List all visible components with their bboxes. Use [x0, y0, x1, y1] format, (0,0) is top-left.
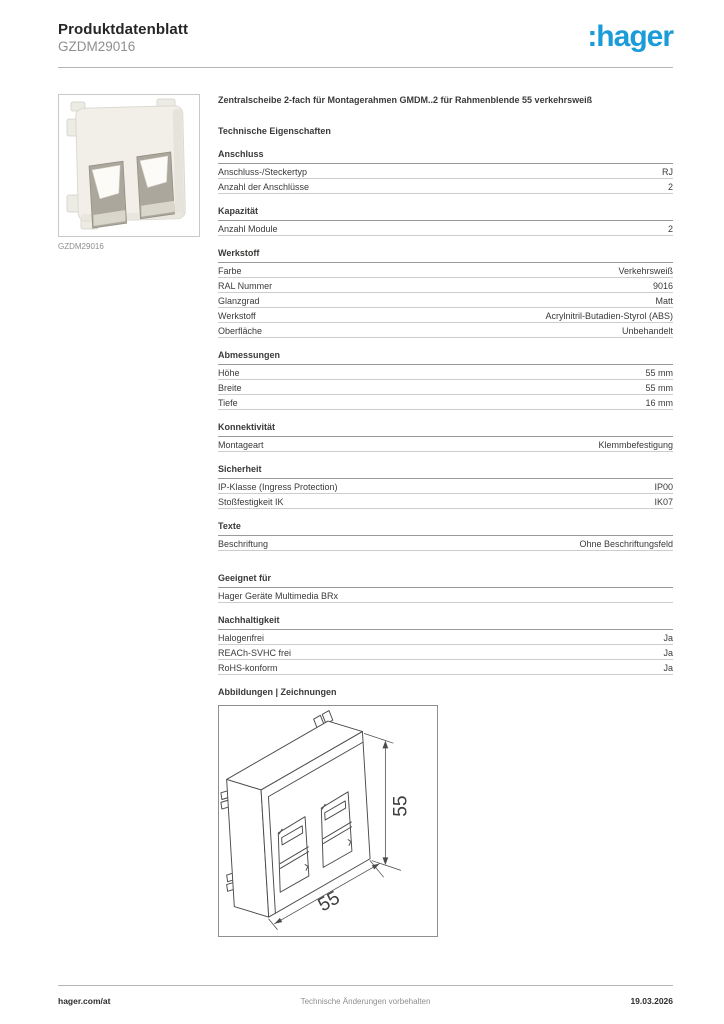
spec-row: Anzahl Module2	[218, 221, 673, 236]
dimension-height-label: 55	[390, 796, 411, 817]
spec-label: Tiefe	[218, 398, 238, 408]
spec-section: KapazitätAnzahl Module2	[218, 206, 673, 236]
spec-column: Zentralscheibe 2-fach für Montagerahmen …	[218, 94, 673, 937]
spec-row: RoHS-konformJa	[218, 660, 673, 675]
spec-label: Breite	[218, 383, 242, 393]
spec-value: 9016	[653, 281, 673, 291]
tech-properties-heading: Technische Eigenschaften	[218, 126, 673, 136]
spec-value: RJ	[662, 167, 673, 177]
spec-section: AnschlussAnschluss-/SteckertypRJAnzahl d…	[218, 149, 673, 194]
product-description: Zentralscheibe 2-fach für Montagerahmen …	[218, 95, 673, 106]
spec-section: TexteBeschriftungOhne Beschriftungsfeld	[218, 521, 673, 551]
spec-label: Werkstoff	[218, 311, 256, 321]
spec-row: HalogenfreiJa	[218, 630, 673, 645]
doc-title: Produktdatenblatt	[58, 21, 673, 38]
spec-label: RAL Nummer	[218, 281, 272, 291]
spec-label: Höhe	[218, 368, 240, 378]
spec-row: Anzahl der Anschlüsse2	[218, 179, 673, 194]
spec-label: RoHS-konform	[218, 663, 278, 673]
product-image-column: GZDM29016	[58, 94, 200, 937]
spec-label: Anzahl Module	[218, 224, 278, 234]
spec-label: Stoßfestigkeit IK	[218, 497, 284, 507]
product-photo-image	[59, 95, 199, 236]
spec-value: Ja	[663, 663, 673, 673]
spec-row: IP-Klasse (Ingress Protection)IP00	[218, 479, 673, 494]
product-reference: GZDM29016	[58, 39, 673, 55]
content: GZDM29016 Zentralscheibe 2-fach für Mont…	[58, 94, 673, 937]
spec-section-title: Kapazität	[218, 206, 673, 221]
spec-value: Ohne Beschriftungsfeld	[579, 539, 673, 549]
spec-row: RAL Nummer9016	[218, 278, 673, 293]
datasheet-page: Produktdatenblatt GZDM29016 :hager	[0, 0, 724, 1024]
spec-row: GlanzgradMatt	[218, 293, 673, 308]
spec-section-title: Anschluss	[218, 149, 673, 164]
spec-label: Hager Geräte Multimedia BRx	[218, 591, 338, 601]
spec-value: 55 mm	[645, 383, 673, 393]
spec-sections: AnschlussAnschluss-/SteckertypRJAnzahl d…	[218, 149, 673, 675]
page-header: Produktdatenblatt GZDM29016 :hager	[58, 0, 673, 68]
spec-value: Ja	[663, 648, 673, 658]
spec-value: Matt	[655, 296, 673, 306]
technical-drawing: 55 55	[219, 706, 437, 936]
spec-section-title: Sicherheit	[218, 464, 673, 479]
spec-section: KonnektivitätMontageartKlemmbefestigung	[218, 422, 673, 452]
spec-label: Glanzgrad	[218, 296, 260, 306]
dimension-width-label: 55	[315, 887, 344, 916]
spec-section-title: Geeignet für	[218, 573, 673, 588]
spec-label: Farbe	[218, 266, 242, 276]
spec-row: REACh-SVHC freiJa	[218, 645, 673, 660]
spec-value: 16 mm	[645, 398, 673, 408]
spec-section: AbmessungenHöhe55 mmBreite55 mmTiefe16 m…	[218, 350, 673, 410]
spec-row: Breite55 mm	[218, 380, 673, 395]
spec-row: Anschluss-/SteckertypRJ	[218, 164, 673, 179]
spec-value: Unbehandelt	[622, 326, 673, 336]
spec-row: Hager Geräte Multimedia BRx	[218, 588, 673, 603]
spec-section-title: Werkstoff	[218, 248, 673, 263]
spec-row: MontageartKlemmbefestigung	[218, 437, 673, 452]
technical-drawing-figure: 55 55	[218, 705, 438, 937]
spec-section-title: Nachhaltigkeit	[218, 615, 673, 630]
spec-label: Anzahl der Anschlüsse	[218, 182, 309, 192]
spec-label: REACh-SVHC frei	[218, 648, 291, 658]
spec-value: Verkehrsweiß	[618, 266, 673, 276]
spec-row: FarbeVerkehrsweiß	[218, 263, 673, 278]
spec-row: OberflächeUnbehandelt	[218, 323, 673, 338]
footer-website-link[interactable]: hager.com/at	[58, 996, 110, 1006]
spec-section: WerkstoffFarbeVerkehrsweißRAL Nummer9016…	[218, 248, 673, 338]
drawings-heading: Abbildungen | Zeichnungen	[218, 687, 673, 697]
footer-notice: Technische Änderungen vorbehalten	[301, 997, 431, 1006]
product-photo-frame	[58, 94, 200, 237]
spec-row: BeschriftungOhne Beschriftungsfeld	[218, 536, 673, 551]
spec-section: Geeignet fürHager Geräte Multimedia BRx	[218, 573, 673, 603]
spec-value: Acrylnitril-Butadien-Styrol (ABS)	[545, 311, 673, 321]
spec-label: Oberfläche	[218, 326, 262, 336]
spec-value: Klemmbefestigung	[598, 440, 673, 450]
spec-section: NachhaltigkeitHalogenfreiJaREACh-SVHC fr…	[218, 615, 673, 675]
spec-label: IP-Klasse (Ingress Protection)	[218, 482, 338, 492]
spec-value: Ja	[663, 633, 673, 643]
spec-row: Stoßfestigkeit IKIK07	[218, 494, 673, 509]
spec-value: IK07	[654, 497, 673, 507]
spec-label: Montageart	[218, 440, 264, 450]
footer-divider	[58, 985, 673, 986]
spec-label: Anschluss-/Steckertyp	[218, 167, 307, 177]
spec-label: Halogenfrei	[218, 633, 264, 643]
spec-section-title: Konnektivität	[218, 422, 673, 437]
hager-logo: :hager	[587, 22, 673, 52]
header-divider	[58, 67, 673, 68]
spec-section-title: Abmessungen	[218, 350, 673, 365]
spec-section: SicherheitIP-Klasse (Ingress Protection)…	[218, 464, 673, 509]
spec-value: IP00	[654, 482, 673, 492]
spec-value: 2	[668, 182, 673, 192]
spec-row: Tiefe16 mm	[218, 395, 673, 410]
spec-section-title: Texte	[218, 521, 673, 536]
product-photo-caption: GZDM29016	[58, 242, 200, 251]
page-footer: hager.com/at Technische Änderungen vorbe…	[58, 996, 673, 1006]
spec-row: WerkstoffAcrylnitril-Butadien-Styrol (AB…	[218, 308, 673, 323]
spec-value: 2	[668, 224, 673, 234]
spec-label: Beschriftung	[218, 539, 268, 549]
spec-value: 55 mm	[645, 368, 673, 378]
spec-row: Höhe55 mm	[218, 365, 673, 380]
footer-date: 19.03.2026	[630, 996, 673, 1006]
